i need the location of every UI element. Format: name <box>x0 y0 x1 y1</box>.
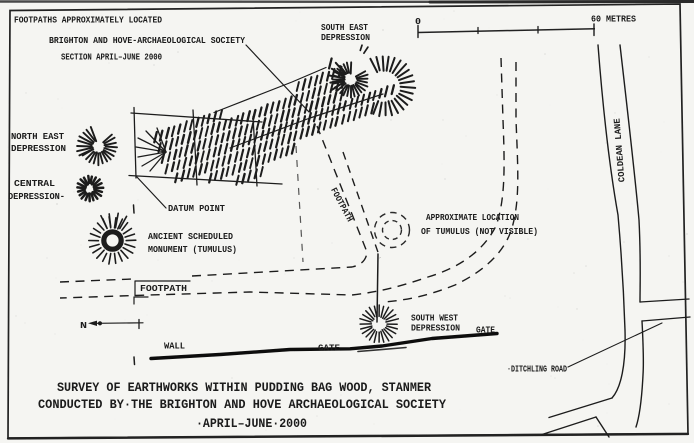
svg-text:SURVEY OF EARTHWORKS WITHIN PU: SURVEY OF EARTHWORKS WITHIN PUDDING BAG … <box>57 380 431 395</box>
svg-text:60 METRES: 60 METRES <box>591 14 636 25</box>
svg-text:CONDUCTED BY·THE BRIGHTON AND: CONDUCTED BY·THE BRIGHTON AND HOVE ARCHA… <box>38 397 446 412</box>
svg-text:ANCIENT SCHEDULED: ANCIENT SCHEDULED <box>148 231 233 242</box>
svg-text:·DITCHLING ROAD: ·DITCHLING ROAD <box>507 364 567 375</box>
svg-text:DEPRESSION: DEPRESSION <box>411 323 460 334</box>
svg-text:WALL: WALL <box>164 341 185 352</box>
svg-text:OF TUMULUS (NOT VISIBLE): OF TUMULUS (NOT VISIBLE) <box>421 226 538 237</box>
svg-text:DEPRESSION: DEPRESSION <box>321 32 370 43</box>
svg-text:FOOTPATHS APPROXIMATELY LOCATE: FOOTPATHS APPROXIMATELY LOCATED <box>14 15 162 26</box>
svg-text:MONUMENT (TUMULUS): MONUMENT (TUMULUS) <box>148 244 237 255</box>
svg-text:FOOTPATH: FOOTPATH <box>140 283 187 294</box>
svg-text:DEPRESSION-: DEPRESSION- <box>8 191 65 202</box>
svg-text:CENTRAL: CENTRAL <box>14 178 55 189</box>
svg-text:N: N <box>80 320 87 331</box>
svg-text:0: 0 <box>415 16 421 27</box>
svg-text:GATE: GATE <box>476 325 495 336</box>
svg-text:DATUM POINT: DATUM POINT <box>168 203 225 214</box>
svg-text:NORTH EAST: NORTH EAST <box>11 131 64 142</box>
svg-text:SECTION APRIL–JUNE 2000: SECTION APRIL–JUNE 2000 <box>61 52 162 63</box>
svg-text:·APRIL–JUNE·2000: ·APRIL–JUNE·2000 <box>196 416 307 431</box>
svg-text:GATE: GATE <box>318 343 340 354</box>
svg-text:APPROXIMATE LOCATION: APPROXIMATE LOCATION <box>426 212 519 223</box>
svg-text:DEPRESSION: DEPRESSION <box>11 143 66 154</box>
svg-text:BRIGHTON AND HOVE-ARCHAEOLOGIC: BRIGHTON AND HOVE-ARCHAEOLOGICAL SOCIETY <box>49 35 245 46</box>
